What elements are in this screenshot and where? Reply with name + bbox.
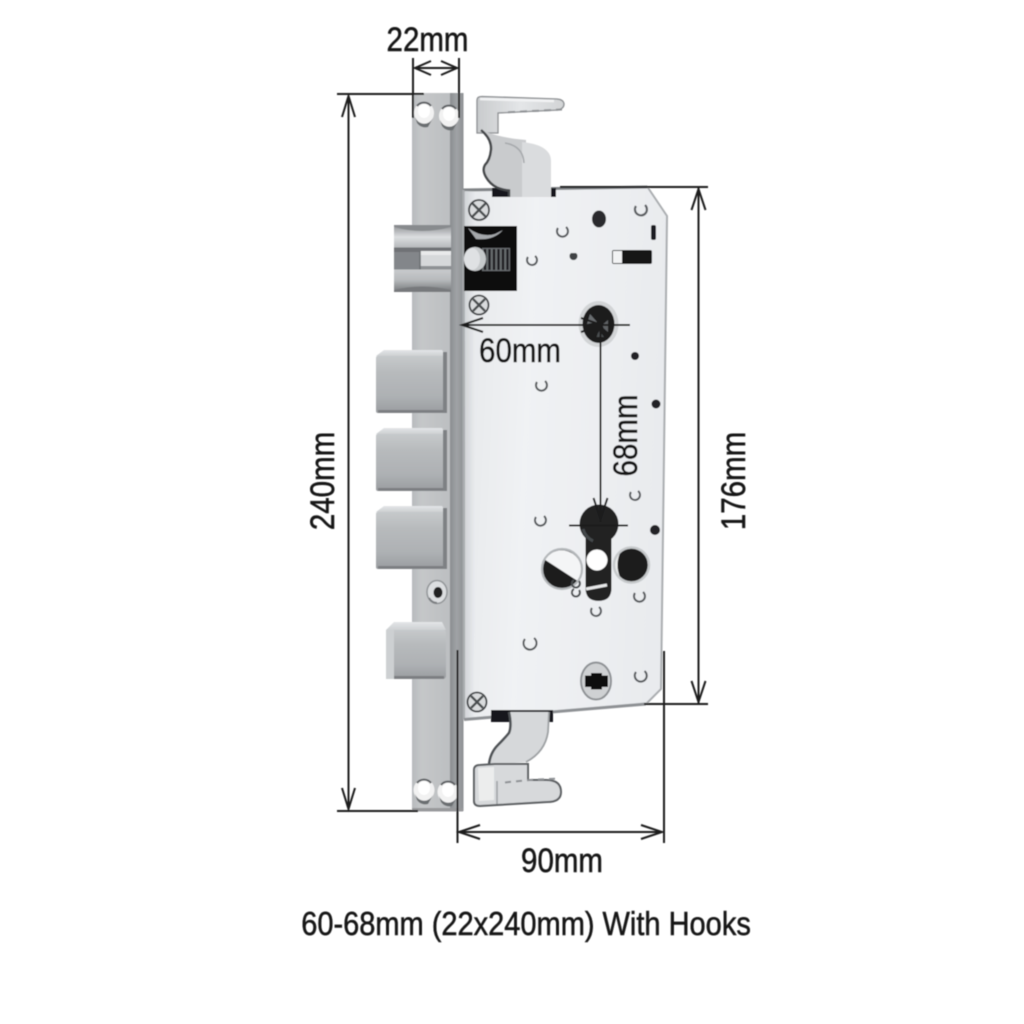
svg-text:68mm: 68mm xyxy=(606,395,644,477)
svg-text:60mm: 60mm xyxy=(479,331,561,369)
svg-text:176mm: 176mm xyxy=(714,432,752,530)
svg-text:60-68mm (22x240mm) With Hooks: 60-68mm (22x240mm) With Hooks xyxy=(301,905,751,942)
svg-text:240mm: 240mm xyxy=(303,432,341,530)
svg-text:90mm: 90mm xyxy=(521,841,603,879)
svg-text:22mm: 22mm xyxy=(387,20,469,58)
